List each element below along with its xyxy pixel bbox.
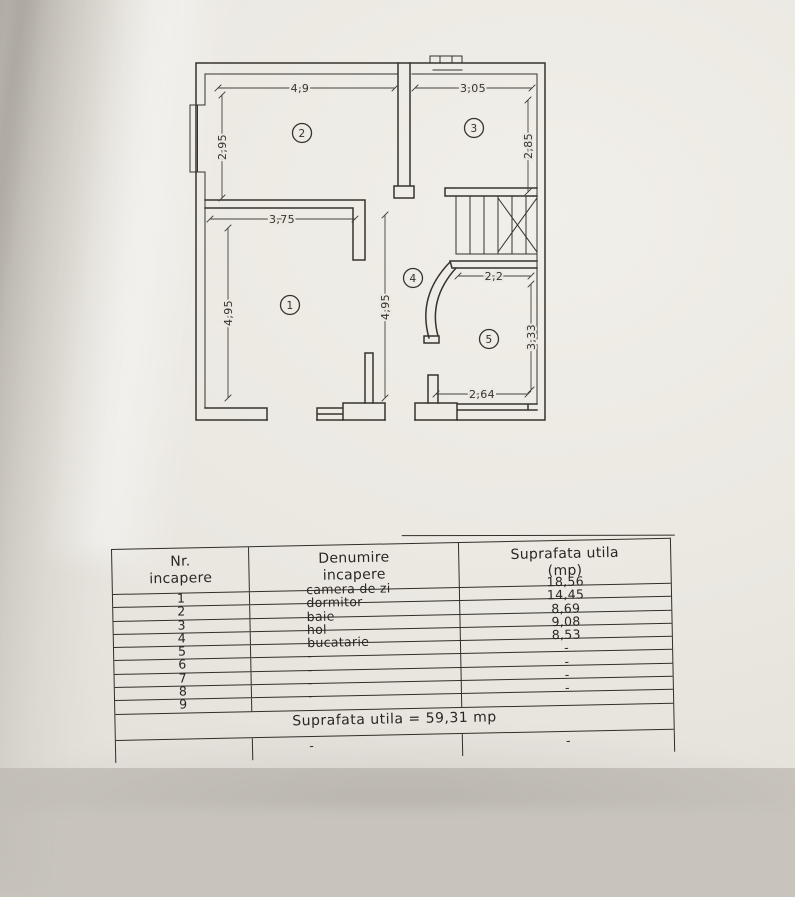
area-table: Nr. incapere Denumire incapere Suprafata… — [111, 538, 675, 763]
wall-room5-left-stub — [428, 375, 438, 403]
wall-room5-top — [450, 261, 537, 268]
wall-room3-bottom — [445, 188, 537, 196]
left-window — [190, 105, 205, 172]
wall-room1-hall-stub — [365, 353, 373, 403]
dim-room1-width: 3,75 — [269, 213, 295, 226]
dim-room2-width: 4,9 — [291, 82, 310, 95]
dim-room2-height: 2,95 — [216, 134, 229, 160]
outer-walls — [196, 63, 545, 420]
dim-hall-height: 4,95 — [379, 294, 392, 320]
room-number-1: 1 — [286, 300, 293, 312]
wall-room2-room3 — [394, 63, 414, 198]
wall-room1-top — [205, 200, 365, 260]
room-number-2: 2 — [298, 128, 305, 140]
dim-room5-width-bottom: 2,64 — [469, 388, 495, 401]
scanned-page: 4,9 3,05 2,95 2,85 3,75 4,95 4,95 2,2 3,… — [0, 0, 795, 768]
inner-wall-lines — [205, 74, 537, 408]
floor-plan: 4,9 3,05 2,95 2,85 3,75 4,95 4,95 2,2 3,… — [186, 50, 554, 430]
room-number-3: 3 — [470, 123, 477, 135]
bottom-wall-details — [205, 403, 537, 420]
dim-room3-width: 3,05 — [460, 82, 486, 95]
stairs — [456, 196, 537, 254]
dim-room3-height: 2,85 — [522, 133, 535, 159]
table-outer-top-border — [402, 535, 675, 536]
dim-room5-height: 3,33 — [525, 324, 538, 350]
dim-room1-height: 4,95 — [222, 300, 235, 326]
room-number-5: 5 — [485, 334, 492, 346]
dim-room5-width-top: 2,2 — [485, 270, 504, 283]
curved-door-wall — [424, 262, 456, 343]
header-nr: Nr. incapere — [112, 547, 250, 594]
room-number-4: 4 — [409, 273, 416, 285]
